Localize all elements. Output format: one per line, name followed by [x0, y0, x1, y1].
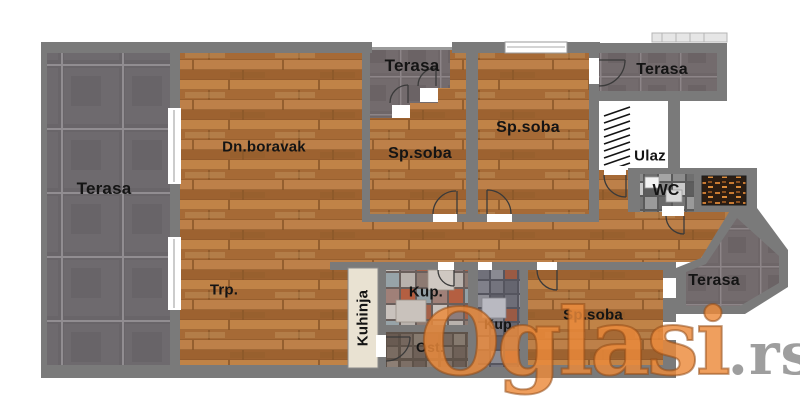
doormat	[702, 176, 746, 205]
room-label-sp-soba-mid: Sp.soba	[388, 145, 452, 163]
room-label-terasa-top-right: Terasa	[636, 61, 688, 79]
room-label-ost: Ost.	[416, 339, 444, 355]
room-label-kuhinja: Kuhinja	[355, 290, 372, 346]
room-label-terasa-mid: Terasa	[385, 56, 440, 76]
room-label-sp-soba-right: Sp.soba	[496, 119, 560, 137]
room-label-wc: WC	[652, 182, 679, 200]
room-label-terasa-left: Terasa	[77, 179, 132, 199]
bathroom1-fixture-2	[396, 300, 426, 322]
room-label-kup-1: Kup.	[409, 284, 443, 301]
floor-plan-page: Terasa Dn.boravak Terasa Sp.soba Sp.soba…	[0, 0, 800, 420]
bathroom2-fixture	[482, 298, 506, 318]
room-label-ulaz: Ulaz	[634, 148, 666, 165]
room-label-terasa-bottom-right: Terasa	[688, 272, 740, 290]
room-label-sp-soba-bottom: Sp.soba	[563, 307, 623, 324]
left-terrace-floor	[47, 52, 170, 365]
room-label-dn-boravak: Dn.boravak	[222, 139, 306, 156]
living-room-floor	[180, 52, 362, 365]
room-label-kup-2: Kup.	[484, 316, 516, 332]
room-label-trp: Trp.	[210, 282, 238, 299]
